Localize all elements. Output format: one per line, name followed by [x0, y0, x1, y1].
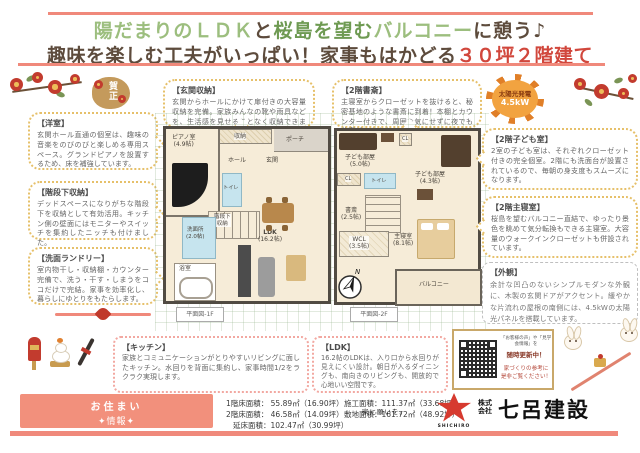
room-label-bath: 浴室 — [179, 265, 191, 272]
flower-icon — [70, 74, 80, 84]
bubble-title: 【キッチン】 — [122, 342, 300, 353]
pillow-icon — [421, 223, 433, 230]
bubble-title: 【洗面ランドリー】 — [37, 253, 149, 264]
bubble-title: 【階段下収納】 — [37, 187, 149, 198]
bubble-body: 室内物干し・収納棚・カウンター完備で、洗う・干す・しまうをココだけで完結。家事を… — [37, 265, 149, 304]
title-seg: 桜島を望む — [273, 20, 373, 42]
prefix-line: 株式 — [478, 399, 492, 407]
qr-line2: 随時更新中！ — [500, 349, 552, 359]
room-label-kids1: 子ども部屋 (5.0帖) — [345, 154, 375, 168]
room-label-cl1: CL — [345, 176, 351, 182]
camellia-decoration-left — [8, 70, 90, 106]
room-label-closet: 収納 — [234, 133, 246, 140]
qr-line3: 家づくりの参考に — [500, 364, 552, 372]
daidai-icon — [57, 338, 63, 343]
room-label-balcony: バルコニー — [419, 281, 449, 288]
chair-icon — [282, 225, 288, 231]
flower-icon — [594, 84, 609, 99]
room-size: (2.0帖) — [186, 234, 205, 241]
room-size: (4.3帖) — [415, 178, 445, 185]
hagoita-handle — [32, 361, 36, 370]
bubble-body: 余計な凹凸のないシンプルモダンな外観に、木製の玄関ドアがアクセント。緩やかな片流… — [490, 279, 630, 324]
bubble-body: 16.2帖のLDKは、入り口から水回りが見えにくい設計。朝日が入るダイニングも、… — [321, 354, 439, 390]
room-bath: 浴室 — [174, 263, 216, 301]
flower-icon — [32, 72, 43, 83]
bed-icon — [417, 219, 455, 259]
caption-text: 平面図-1F — [186, 311, 213, 318]
room-name: 収納 — [214, 221, 231, 228]
qr-line4: 是非ご覧ください！ — [500, 372, 552, 380]
footer-label-line1: お住まい — [20, 398, 213, 413]
qr-finder — [488, 340, 497, 349]
qr-text: 「お客様の声」や「見学会情報」を 随時更新中！ 家づくりの参考に 是非ご覧くださ… — [500, 336, 552, 386]
room-size: (5.0帖) — [345, 161, 375, 168]
title-seg: と — [253, 20, 273, 42]
chair-icon — [266, 225, 272, 231]
sun-core: 太陽光発電 4.5kW — [492, 80, 538, 118]
title-seg: 陽だまりの — [94, 20, 194, 42]
title-seg: に憩う♪ — [473, 20, 546, 42]
qr-finder — [459, 340, 468, 349]
bubble-body: 家族とコミュニケーションがとりやすいリビングに面したキッチン。水回りを背面に集約… — [122, 354, 300, 383]
bubble-title: 【玄関収納】 — [172, 85, 306, 96]
logo-tagline: 家に願いを。 — [362, 406, 407, 416]
room-label-wcl: WCL (3.5帖) — [349, 236, 369, 250]
room-label-washroom: 洗面所 (2.0帖) — [186, 227, 205, 240]
room-label-study: 書斎 (2.5帖) — [341, 207, 361, 221]
compass-icon: N — [336, 266, 366, 302]
chair-icon — [266, 197, 272, 203]
rabbit-icon — [564, 334, 582, 350]
room-label-piano: ピアノ室 (4.9帖) — [172, 134, 195, 148]
qr-finder — [459, 369, 468, 378]
floor-plan-1f: ポーチ 収納 ピアノ室 (4.9帖) ホール 玄関 トイレ 階段下 収納 洗面所… — [163, 126, 331, 304]
kagamimochi-top — [55, 343, 67, 353]
basket-icon — [594, 358, 606, 367]
bow-icon — [95, 306, 112, 323]
flyer-page: 陽だまりのＬＤＫと桜島を望むバルコニーに憩う♪ 趣味を楽しむ工夫がいっぱい！家事… — [0, 0, 640, 453]
footer-label-line2: ✦情報✦ — [20, 414, 213, 427]
qr-code — [459, 340, 497, 378]
rabbit-ear — [572, 325, 582, 340]
room-size: (8.1帖) — [393, 240, 413, 247]
bubble-exterior: 【外観】 余計な凹凸のないシンプルモダンな外観に、木製の玄関ドアがアクセント。緩… — [482, 262, 638, 324]
rabbit-eye — [631, 332, 633, 334]
plan-caption-2f: 平面図-2F — [350, 307, 398, 322]
bubble-under-stairs: 【階段下収納】 デッドスペースになりがちな階段下を収納として有効活用。キッチン側… — [28, 181, 158, 240]
logo-brand-en: SHICHIRO — [434, 424, 474, 429]
desk-icon — [417, 189, 433, 200]
qr-line1: 「お客様の声」や「見学会情報」を — [500, 336, 552, 348]
bubble-kids-room: 【2階子ども室】 2室の子ども室は、それぞれクローゼット付きの完全個室。2階にも… — [482, 128, 638, 190]
room-name: 洗面所 — [186, 227, 205, 234]
rabbit-eye — [569, 340, 571, 342]
kitchen-counter-icon — [238, 245, 251, 297]
seal-text: 賀正 — [106, 81, 119, 101]
footer-label-box: お住まい ✦情報✦ — [20, 394, 213, 428]
title-seg: バルコニー — [373, 20, 473, 42]
compass-n-label: N — [355, 268, 361, 276]
pillow-icon — [437, 223, 449, 230]
header-rule-bottom — [18, 63, 605, 66]
bathtub-icon — [179, 277, 213, 299]
bubble-title: 【2階主寝室】 — [491, 202, 629, 213]
camellia-decoration-right — [570, 72, 640, 114]
new-year-seal: 賀正 — [92, 77, 130, 109]
stairs — [365, 195, 401, 233]
room-label-ldk: LDK (16.2帖) — [258, 229, 282, 243]
bubble-western-room: 【洋室】 玄関ホール直通の個室は、趣味の音楽をのびのびと楽しめる専用スペース。グ… — [28, 112, 158, 170]
room-label-under-stairs: 階段下 収納 — [214, 214, 231, 227]
bubble-master-bedroom: 【2階主寝室】 桜島を望むバルコニー直結で、ゆったり景色を眺めて気分転換もできる… — [482, 196, 638, 258]
room-label-toilet-2f: トイレ — [371, 178, 387, 184]
bubble-title: 【外観】 — [490, 267, 630, 278]
bubble-body: 桜島を望むバルコニー直結で、ゆったり景色を眺めて気分転換もできる主寝室。大容量の… — [491, 214, 629, 253]
room-label-cl2: CL — [402, 136, 408, 142]
title-seg: ＬＤＫ — [193, 20, 253, 42]
bed-icon — [441, 135, 471, 167]
dining-table-icon — [262, 203, 294, 223]
bubble-body: デッドスペースになりがちな階段下を収納として有効活用。キッチン側の壁面にはモニタ… — [37, 199, 149, 248]
room-size: (2.5帖) — [341, 214, 361, 221]
flower-icon — [48, 80, 62, 94]
room-name: 階段下 — [214, 214, 231, 221]
bubble-body: 玄関ホール直通の個室は、趣味の音楽をのびのびと楽しめる専用スペース。グランドピア… — [37, 130, 149, 169]
rabbit-eye — [625, 332, 627, 334]
room-size: (16.2帖) — [258, 236, 282, 243]
flower-icon — [628, 74, 637, 83]
logo-company-name: 七呂建設 — [498, 394, 590, 424]
desk-icon — [381, 133, 394, 142]
solar-label: 太陽光発電 — [492, 88, 538, 98]
bubble-title: 【LDK】 — [321, 342, 439, 353]
sun-icon: 太陽光発電 4.5kW — [486, 74, 544, 124]
area-1f: 1階床面積： 55.89㎡（16.90坪） — [226, 398, 344, 409]
bubble-kitchen: 【キッチン】 家族とコミュニケーションがとりやすいリビングに面したキッチン。水回… — [113, 336, 309, 393]
area-2f: 2階床面積： 46.58㎡（14.09坪） — [226, 409, 344, 420]
bubble-laundry: 【洗面ランドリー】 室内物干し・収納棚・カウンター完備で、洗う・干す・しまうをコ… — [28, 247, 158, 305]
room-label-hall: ホール — [228, 157, 246, 164]
room-label-entrance: 玄関 — [266, 157, 278, 164]
header-rule-top — [48, 12, 593, 15]
sofa-icon — [258, 257, 275, 297]
bubble-title: 【洋室】 — [37, 118, 149, 129]
qr-panel: 「お客様の声」や「見学会情報」を 随時更新中！ 家づくりの参考に 是非ご覧くださ… — [452, 329, 554, 390]
room-size: (3.5帖) — [349, 243, 369, 250]
area-total: 延床面積：102.47㎡（30.99坪） — [233, 420, 348, 431]
room-size: (4.9帖) — [172, 141, 195, 148]
plan-caption-1f: 平面図-1F — [176, 307, 224, 322]
chair-icon — [282, 197, 288, 203]
rabbit-icon — [620, 326, 638, 342]
footer-rule — [10, 431, 618, 436]
tv-board-icon — [286, 255, 306, 281]
bubble-body: 2室の子ども室は、それぞれクローゼット付きの完全個室。2階にも洗面台が設置されて… — [491, 146, 629, 185]
bubble-title: 【2階書斎】 — [341, 85, 473, 96]
leaf-icon — [583, 98, 593, 108]
room-label-master: 主寝室 (8.1帖) — [393, 233, 413, 247]
room-label-porch: ポーチ — [286, 136, 304, 143]
solar-value: 4.5kW — [492, 98, 538, 107]
logo-company-prefix: 株式 会社 — [478, 399, 492, 415]
hagoita-band — [30, 345, 39, 350]
flower-icon — [574, 78, 586, 90]
bed-icon — [339, 133, 377, 150]
flower-icon — [10, 78, 23, 91]
room-label-kids2: 子ども部屋 (4.3帖) — [415, 171, 445, 185]
tassel-icon — [598, 354, 603, 359]
leaf-icon — [613, 77, 623, 85]
room-label-toilet: トイレ — [223, 185, 239, 191]
flower-icon — [118, 95, 126, 103]
caption-text: 平面図-2F — [360, 311, 387, 318]
rabbit-decorations — [558, 322, 640, 392]
main-title-line1: 陽だまりのＬＤＫと桜島を望むバルコニーに憩う♪ — [0, 16, 640, 43]
bubble-title: 【2階子ども室】 — [491, 134, 629, 145]
ribbon-divider — [55, 313, 151, 316]
prefix-line: 会社 — [478, 407, 492, 415]
new-year-decorations — [26, 333, 106, 389]
flower-icon — [618, 88, 629, 99]
bubble-ldk: 【LDK】 16.2帖のLDKは、入り口から水回りが見えにくい設計。朝日が入るダ… — [312, 336, 448, 393]
flower-icon — [94, 80, 103, 89]
rabbit-eye — [575, 340, 577, 342]
